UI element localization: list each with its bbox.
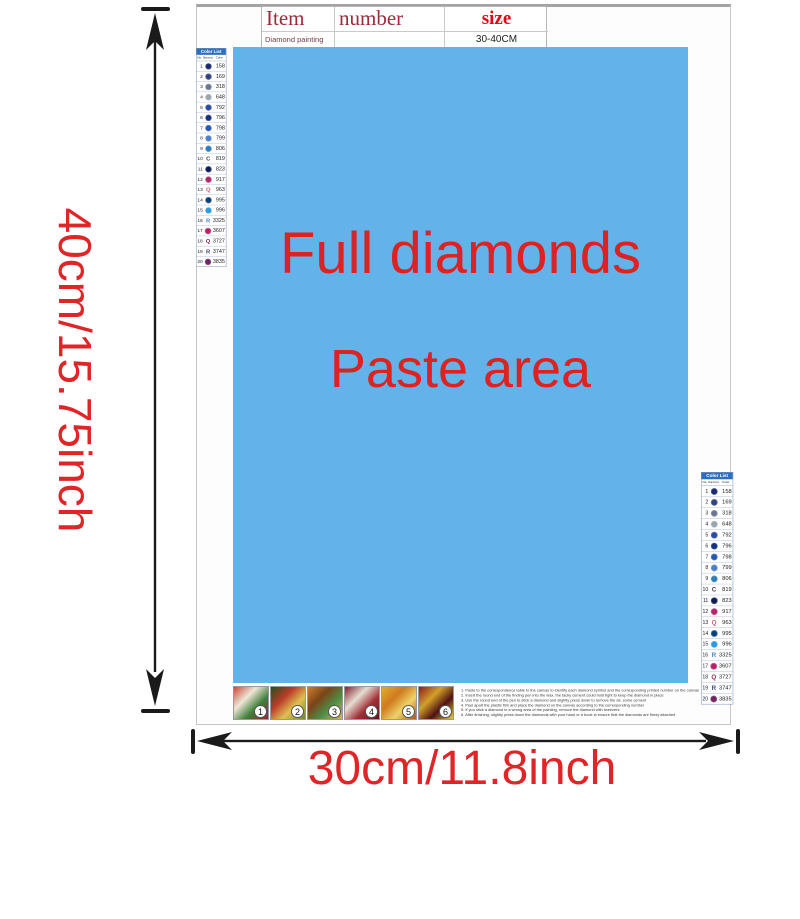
- diamond-dot-icon: [205, 177, 211, 183]
- diamond-dot-icon: [711, 499, 718, 506]
- diamond-symbol: [709, 661, 719, 671]
- row-number: 16: [196, 218, 203, 223]
- diamond-symbol: [203, 82, 213, 92]
- color-list-row: 13Q963: [196, 185, 225, 195]
- row-number: 18: [196, 238, 203, 243]
- row-number: 2: [196, 74, 203, 79]
- color-list-table: Color List No. Diamond Color 11582169331…: [701, 472, 733, 704]
- dmc-color-code: 158: [719, 488, 733, 494]
- color-list-row: 16R3325: [196, 216, 225, 226]
- dmc-color-code: 3727: [719, 674, 733, 680]
- diamond-symbol: C: [709, 584, 719, 594]
- row-number: 4: [196, 94, 203, 99]
- diamond-symbol: [203, 205, 213, 215]
- row-number: 7: [196, 125, 203, 130]
- dmc-color-code: 963: [719, 619, 733, 625]
- color-list-row: 14995: [702, 628, 733, 639]
- dmc-color-code: 158: [213, 63, 226, 69]
- dmc-color-code: 996: [213, 207, 226, 213]
- diamond-symbol: [709, 541, 719, 551]
- diamond-dot-icon: [205, 94, 211, 100]
- width-dimension-label: 30cm/11.8inch: [262, 742, 662, 796]
- dmc-color-code: 995: [719, 630, 733, 636]
- diamond-symbol: [709, 606, 719, 616]
- diamond-dot-icon: [205, 63, 211, 69]
- color-list-row: 7798: [702, 552, 733, 563]
- row-number: 9: [702, 576, 709, 582]
- dmc-color-code: 3325: [719, 652, 733, 658]
- row-number: 19: [196, 249, 203, 254]
- step-number-badge: 5: [402, 705, 415, 718]
- diamond-symbol: [709, 595, 719, 605]
- color-list-row: 6796: [196, 113, 225, 123]
- color-list-title: Color List: [196, 48, 225, 54]
- color-list-row: 7798: [196, 123, 225, 133]
- color-list-rows: 11582169331846485792679677988799980610C8…: [702, 486, 733, 704]
- color-list-row: 13Q963: [702, 617, 733, 628]
- diamond-dot-icon: [205, 259, 211, 265]
- color-list-row: 11823: [196, 164, 225, 174]
- row-number: 17: [702, 663, 709, 669]
- color-list-row: 3318: [196, 82, 225, 92]
- dmc-color-code: 799: [213, 135, 226, 141]
- color-list-row: 1158: [196, 61, 225, 71]
- diamond-dot-icon: [711, 554, 718, 561]
- row-number: 15: [196, 207, 203, 212]
- paste-area-subtitle: Paste area: [233, 337, 688, 401]
- step-image-5: 5: [381, 686, 417, 720]
- height-arrow: [141, 7, 170, 713]
- dmc-color-code: 806: [719, 575, 733, 581]
- diamond-dot-icon: [711, 630, 718, 637]
- row-number: 3: [196, 84, 203, 89]
- dmc-color-code: 318: [213, 84, 226, 90]
- step-number-badge: 6: [439, 705, 452, 718]
- color-list-row: 19R3747: [702, 683, 733, 694]
- color-list-row: 15996: [196, 205, 225, 215]
- row-number: 15: [702, 641, 709, 647]
- dmc-color-code: 3835: [719, 696, 733, 702]
- dmc-color-code: 3747: [213, 248, 226, 254]
- color-list-row: 18Q3727: [702, 672, 733, 683]
- diamond-symbol: [709, 694, 719, 704]
- dmc-color-code: 3325: [213, 218, 226, 224]
- color-list-table: Color List No. Diamond Color 11582169331…: [196, 48, 226, 267]
- dmc-color-code: 995: [213, 197, 226, 203]
- dmc-color-code: 169: [213, 73, 226, 79]
- spec-value-number: [334, 31, 444, 48]
- diamond-symbol: [203, 226, 213, 236]
- color-list-row: 203835: [702, 694, 733, 704]
- diamond-symbol: R: [203, 246, 213, 256]
- color-list-row: 2169: [702, 497, 733, 508]
- diamond-dot-icon: [711, 576, 718, 583]
- row-number: 5: [196, 105, 203, 110]
- diamond-symbol: [203, 123, 213, 133]
- color-list-row: 6796: [702, 541, 733, 552]
- color-list-row: 5792: [702, 530, 733, 541]
- row-number: 10: [196, 156, 203, 161]
- diamond-dot-icon: [205, 115, 211, 121]
- diamond-symbol: [709, 486, 719, 496]
- dmc-color-code: 3727: [213, 238, 226, 244]
- diamond-symbol: [709, 497, 719, 507]
- diamond-dot-icon: [711, 641, 718, 648]
- color-list-row: 4648: [196, 92, 225, 102]
- diamond-symbol: R: [709, 650, 719, 660]
- diamond-symbol: [203, 257, 213, 267]
- instruction-lines: 1. Paste to the correspondence table to …: [461, 688, 703, 717]
- spec-value-size: 30-40CM: [444, 31, 548, 48]
- color-list-row: 11823: [702, 595, 733, 606]
- color-list-title: Color List: [702, 473, 733, 480]
- dmc-color-code: 796: [213, 115, 226, 121]
- dmc-color-code: 798: [719, 554, 733, 560]
- step-number-badge: 1: [254, 705, 267, 718]
- dmc-color-code: 917: [719, 608, 733, 614]
- diamond-dot-icon: [711, 597, 718, 604]
- dmc-color-code: 648: [719, 521, 733, 527]
- dmc-color-code: 169: [719, 499, 733, 505]
- row-number: 11: [702, 598, 709, 604]
- spec-header-size: size: [444, 7, 548, 31]
- color-list-row: 18Q3727: [196, 236, 225, 246]
- color-list-row: 15996: [702, 639, 733, 650]
- paste-area-title: Full diamonds: [233, 219, 688, 289]
- diamond-dot-icon: [205, 146, 211, 152]
- row-number: 20: [196, 259, 203, 264]
- row-number: 13: [702, 619, 709, 625]
- diamond-symbol: [203, 102, 213, 112]
- step-image-2: 2: [270, 686, 306, 720]
- diamond-dot-icon: [710, 663, 717, 670]
- dmc-color-code: 792: [719, 532, 733, 538]
- row-number: 18: [702, 674, 709, 680]
- color-list-row: 9806: [196, 144, 225, 154]
- diamond-symbol: [709, 639, 719, 649]
- color-list-row: 10C819: [196, 154, 225, 164]
- dmc-color-code: 796: [719, 543, 733, 549]
- row-number: 10: [702, 587, 709, 593]
- col-diamond-label: Diamond: [708, 481, 718, 484]
- dmc-color-code: 3607: [213, 228, 226, 234]
- diamond-dot-icon: [711, 510, 718, 517]
- diamond-symbol: Q: [709, 617, 719, 627]
- row-number: 6: [196, 115, 203, 120]
- dmc-color-code: 917: [213, 176, 226, 182]
- diamond-symbol: C: [203, 154, 213, 164]
- diamond-symbol: [203, 174, 213, 184]
- diamond-symbol: [709, 573, 719, 583]
- spec-header-item: Item: [262, 7, 334, 31]
- row-number: 11: [196, 166, 203, 171]
- diamond-dot-icon: [205, 84, 211, 90]
- row-number: 17: [196, 228, 203, 233]
- spec-value-item: Diamond painting: [262, 31, 334, 48]
- diamond-symbol: [709, 519, 719, 529]
- color-list-row: 10C819: [702, 584, 733, 595]
- row-number: 13: [196, 187, 203, 192]
- diamond-symbol: [709, 530, 719, 540]
- dmc-color-code: 798: [213, 125, 226, 131]
- row-number: 1: [196, 63, 203, 68]
- dmc-color-code: 823: [213, 166, 226, 172]
- spec-header-number: number: [334, 7, 444, 31]
- dmc-color-code: 996: [719, 641, 733, 647]
- row-number: 7: [702, 554, 709, 560]
- col-color-label: Color: [719, 481, 733, 484]
- diamond-symbol: [709, 508, 719, 518]
- dmc-color-code: 3747: [719, 685, 733, 691]
- instruction-line: 6. After finishing, slightly press down …: [461, 712, 703, 717]
- diamond-symbol: [203, 144, 213, 154]
- color-list-row: 8799: [702, 562, 733, 573]
- diamond-symbol: Q: [709, 672, 719, 682]
- color-list-right: Color List No. Diamond Color 11582169331…: [701, 472, 763, 919]
- color-list-row: 1158: [702, 486, 733, 497]
- dmc-color-code: 799: [719, 565, 733, 571]
- diamond-symbol: [203, 61, 213, 71]
- dmc-color-code: 819: [719, 586, 733, 592]
- color-list-row: 4648: [702, 519, 733, 530]
- row-number: 14: [196, 197, 203, 202]
- diamond-symbol: [709, 562, 719, 572]
- diamond-symbol: Q: [203, 185, 213, 195]
- dmc-color-code: 3607: [719, 663, 733, 669]
- diamond-symbol: R: [203, 216, 213, 226]
- col-diamond-label: Diamond: [203, 56, 213, 59]
- diamond-symbol: [203, 164, 213, 174]
- col-no-label: No.: [702, 481, 709, 484]
- step-number-badge: 4: [365, 705, 378, 718]
- diamond-dot-icon: [711, 532, 718, 539]
- diamond-dot-icon: [711, 521, 718, 528]
- color-list-row: 12917: [196, 174, 225, 184]
- diamond-dot-icon: [711, 565, 718, 572]
- row-number: 2: [702, 499, 709, 505]
- color-list-row: 203835: [196, 257, 225, 267]
- row-number: 12: [702, 609, 709, 615]
- diamond-dot-icon: [711, 488, 718, 495]
- col-color-label: Color: [213, 56, 226, 59]
- diamond-dot-icon: [205, 135, 211, 141]
- color-list-row: 9806: [702, 573, 733, 584]
- spec-table: Item number size Diamond painting 30-40C…: [261, 6, 547, 49]
- diamond-symbol: [709, 628, 719, 638]
- step-image-3: 3: [307, 686, 343, 720]
- diamond-symbol: [203, 92, 213, 102]
- paste-area: Full diamonds Paste area: [233, 47, 688, 683]
- diamond-dot-icon: [711, 608, 718, 615]
- row-number: 1: [702, 488, 709, 494]
- color-list-row: 14995: [196, 195, 225, 205]
- color-list-left: Color List No. Diamond Color 11582169331…: [196, 48, 258, 495]
- row-number: 4: [702, 521, 709, 527]
- color-list-row: 12917: [702, 606, 733, 617]
- color-list-row: 173607: [196, 226, 225, 236]
- color-list-row: 173607: [702, 661, 733, 672]
- diamond-symbol: R: [709, 683, 719, 693]
- row-number: 5: [702, 532, 709, 538]
- diamond-dot-icon: [205, 228, 211, 234]
- row-number: 12: [196, 177, 203, 182]
- dmc-color-code: 3835: [213, 259, 226, 265]
- row-number: 16: [702, 652, 709, 658]
- step-images: 123456: [233, 686, 454, 720]
- dmc-color-code: 963: [213, 187, 226, 193]
- row-number: 3: [702, 510, 709, 516]
- step-number-badge: 3: [328, 705, 341, 718]
- diamond-symbol: [709, 552, 719, 562]
- instructions-block: 1. Paste to the correspondence table to …: [461, 688, 703, 720]
- color-list-row: 8799: [196, 133, 225, 143]
- product-diagram: 40cm/15.75inch Item number size Diamond …: [0, 0, 800, 800]
- dmc-color-code: 823: [719, 597, 733, 603]
- color-list-row: 19R3747: [196, 246, 225, 256]
- step-image-1: 1: [233, 686, 269, 720]
- dmc-color-code: 819: [213, 156, 226, 162]
- diamond-dot-icon: [205, 74, 211, 80]
- diamond-dot-icon: [205, 207, 211, 213]
- color-list-row: 5792: [196, 102, 225, 112]
- color-list-columns: No. Diamond Color: [702, 479, 733, 486]
- row-number: 14: [702, 630, 709, 636]
- height-dimension-label: 40cm/15.75inch: [49, 168, 101, 572]
- color-list-row: 2169: [196, 72, 225, 82]
- diamond-symbol: [203, 72, 213, 82]
- diamond-dot-icon: [710, 696, 717, 703]
- diamond-dot-icon: [711, 543, 718, 550]
- row-number: 8: [702, 565, 709, 571]
- color-list-row: 3318: [702, 508, 733, 519]
- diamond-dot-icon: [205, 197, 211, 203]
- row-number: 6: [702, 543, 709, 549]
- diamond-symbol: [203, 133, 213, 143]
- diamond-dot-icon: [205, 125, 211, 131]
- color-list-row: 16R3325: [702, 650, 733, 661]
- dmc-color-code: 806: [213, 146, 226, 152]
- row-number: 8: [196, 135, 203, 140]
- row-number: 9: [196, 146, 203, 151]
- dmc-color-code: 792: [213, 104, 226, 110]
- diamond-dot-icon: [205, 166, 211, 172]
- dmc-color-code: 648: [213, 94, 226, 100]
- diamond-symbol: [203, 113, 213, 123]
- color-list-rows: 11582169331846485792679677988799980610C8…: [196, 61, 225, 266]
- diamond-symbol: Q: [203, 236, 213, 246]
- diamond-symbol: [203, 195, 213, 205]
- diamond-dot-icon: [205, 105, 211, 111]
- dmc-color-code: 318: [719, 510, 733, 516]
- step-image-6: 6: [418, 686, 454, 720]
- step-image-4: 4: [344, 686, 380, 720]
- step-number-badge: 2: [291, 705, 304, 718]
